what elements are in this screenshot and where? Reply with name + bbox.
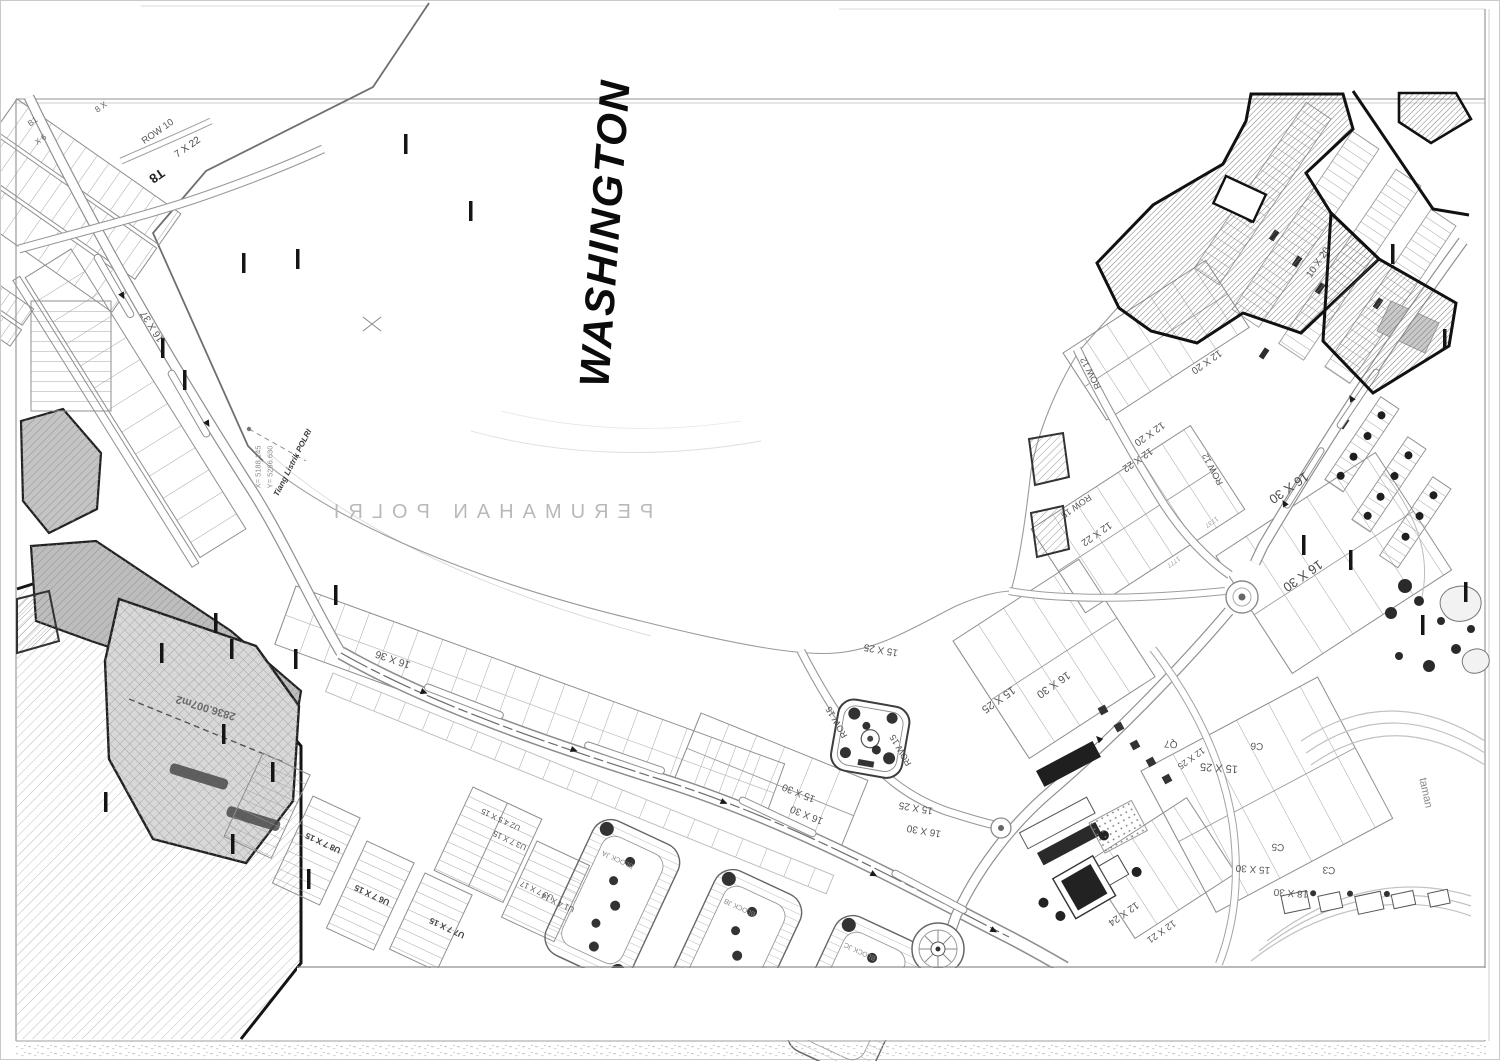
terrain-contours <box>269 411 761 636</box>
park-playground <box>828 697 911 780</box>
block-ja <box>538 813 686 987</box>
parcel-boundary <box>153 3 1119 654</box>
small-buildings-southeast <box>1281 862 1450 937</box>
adjacent-sheet-edge <box>16 1045 1486 1059</box>
site-plan-drawing <box>1 1 1500 1061</box>
site-plan-sheet: WASHINGTONPERUMAHAN POLRIX= 5188.145Y= 5… <box>0 0 1500 1060</box>
